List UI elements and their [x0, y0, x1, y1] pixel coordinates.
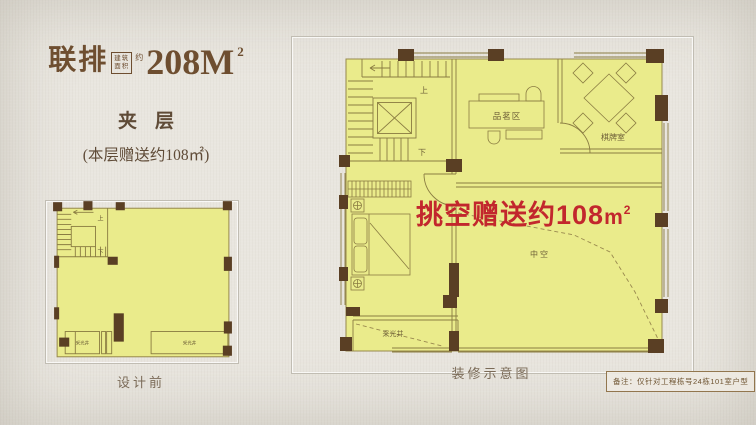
area-prefix-line2: 面积 [114, 63, 129, 71]
area-value: 208M [146, 44, 234, 80]
label-up: 上 [420, 86, 428, 95]
label-lightwell-right: 采光井 [183, 340, 197, 347]
header: 联排 建筑 面积 约 208M 2 夹层 (本层赠送约108㎡) [38, 44, 254, 165]
label-lightwell-left: 采光井 [76, 340, 90, 347]
plan-area [57, 208, 229, 357]
bonus-highlight-sup: 2 [624, 203, 632, 217]
label-lightwell: 采光井 [383, 329, 404, 338]
title-row: 联排 建筑 面积 约 208M 2 [38, 44, 254, 80]
caption-before: 设计前 [45, 372, 237, 391]
label-chess-room: 棋牌室 [601, 132, 625, 142]
bonus-highlight-text: 挑空赠送约108 [416, 200, 604, 230]
label-down: 下 [418, 148, 426, 157]
project-type-label: 联排 [48, 44, 108, 78]
poster: 联排 建筑 面积 约 208M 2 夹层 (本层赠送约108㎡) [0, 0, 756, 425]
label-down: 下 [98, 250, 104, 257]
floorplan-before-box: 上 下 采光井 采光井 [45, 200, 239, 364]
area-prefix-box: 建筑 面积 [111, 52, 132, 74]
floor-title: 夹层 [38, 106, 254, 133]
floor-bonus-note: (本层赠送约108㎡) [38, 143, 254, 165]
label-up: 上 [98, 214, 104, 222]
label-void: 中空 [530, 249, 550, 259]
area-about-label: 约 [135, 52, 143, 63]
label-tea-area: 品茗区 [493, 111, 522, 121]
bonus-highlight-unit: m [604, 206, 624, 229]
footnote-box: 备注：仅针对工程栋号24栋101室户型 [606, 371, 755, 392]
bonus-highlight: 挑空赠送约108m2 [416, 196, 631, 232]
floorplan-before: 上 下 采光井 采光井 [46, 201, 238, 363]
area-prefix-line1: 建筑 [114, 55, 129, 63]
area-superscript: 2 [237, 45, 244, 58]
